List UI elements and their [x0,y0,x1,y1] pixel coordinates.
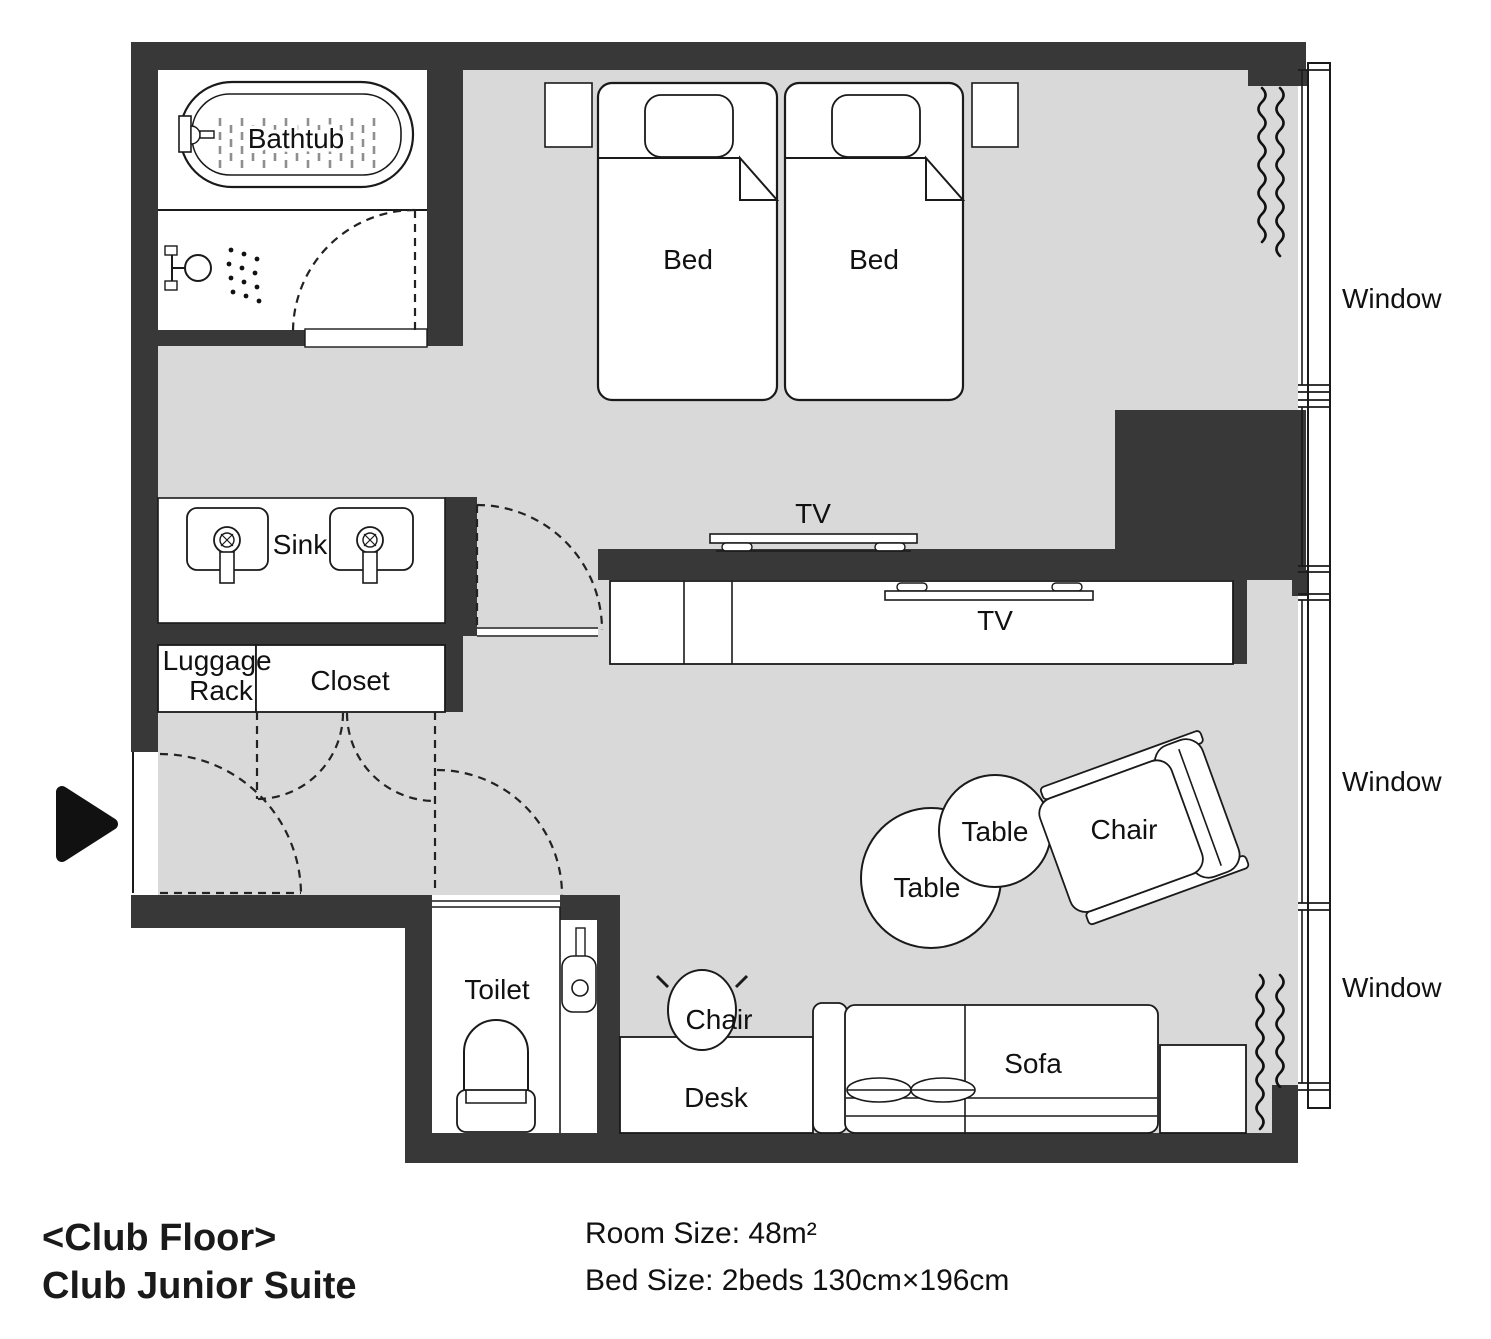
bed-right [785,83,963,400]
toilet-bowl-icon [457,1020,535,1132]
armchair-label: Chair [1091,814,1158,845]
nightstand-right [972,83,1018,147]
toilet-label: Toilet [464,974,530,1005]
sofa [813,1003,1158,1133]
tv-bedroom-label: TV [795,498,831,529]
closet-label: Closet [310,665,390,696]
floorplan-canvas: Bathtub Bed Bed Sink Luggage Rack Closet… [0,0,1491,1339]
window-middle-label: Window [1342,766,1442,797]
bed-left [598,83,777,400]
bed-right-label: Bed [849,244,899,275]
table-large-label: Table [894,872,961,903]
floor-title-line2: Club Junior Suite [42,1265,357,1307]
tv-living-label: TV [977,605,1013,636]
corridor-door-threshold [477,627,598,637]
bed-size-text: Bed Size: 2beds 130cm×196cm [585,1264,1009,1297]
entrance-opening [131,752,158,893]
nightstand-left [545,83,592,147]
floor-title-line1: <Club Floor> [42,1217,276,1259]
window-bottom-label: Window [1342,972,1442,1003]
bathtub-label: Bathtub [248,123,345,154]
toilet-room [432,895,597,1133]
sink-counter [158,498,445,623]
room-size-text: Room Size: 48m² [585,1217,817,1250]
desk-chair-label: Chair [686,1004,753,1035]
bed-left-label: Bed [663,244,713,275]
desk-label: Desk [684,1082,749,1113]
table-small-label: Table [962,816,1029,847]
bathroom-sliding-door [305,329,427,347]
sink-label: Sink [273,529,328,560]
floorplan-page: Bathtub Bed Bed Sink Luggage Rack Closet… [0,0,1491,1339]
side-table [1160,1045,1246,1133]
sofa-label: Sofa [1004,1048,1062,1079]
window-top-label: Window [1342,283,1442,314]
